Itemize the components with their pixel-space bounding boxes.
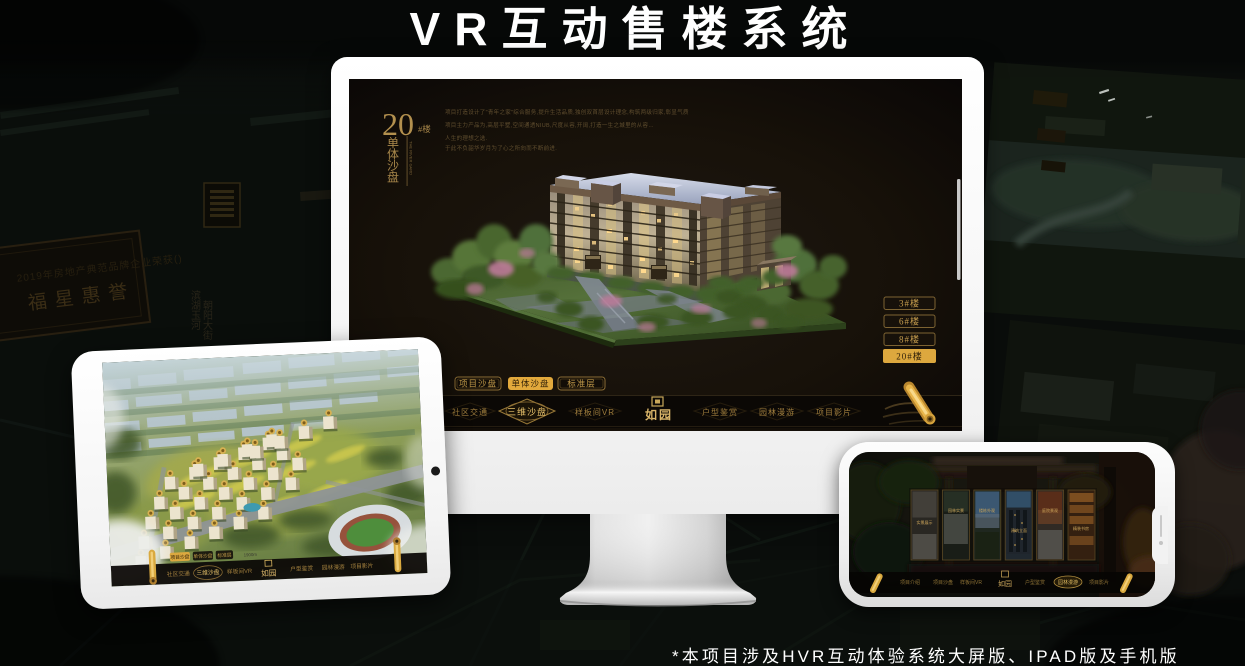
svg-text:三维沙盘: 三维沙盘 xyxy=(507,406,547,417)
svg-text:如园: 如园 xyxy=(645,407,673,422)
svg-text:3#楼: 3#楼 xyxy=(899,298,920,309)
svg-text:#楼: #楼 xyxy=(418,124,431,134)
svg-text:朝阳大街: 朝阳大街 xyxy=(201,300,213,341)
svg-text:单体沙盘: 单体沙盘 xyxy=(511,379,549,389)
svg-text:项目介绍: 项目介绍 xyxy=(900,579,920,586)
svg-text:项目沙盘: 项目沙盘 xyxy=(933,579,953,586)
svg-text:楼栋外观: 楼栋外观 xyxy=(979,507,995,513)
svg-text:园林漫游: 园林漫游 xyxy=(759,407,795,417)
svg-text:如园: 如园 xyxy=(261,567,277,578)
svg-text:1900m: 1900m xyxy=(244,552,258,558)
svg-text:于此不负韶华岁月为了心之所向而不断前进.: 于此不负韶华岁月为了心之所向而不断前进. xyxy=(445,144,557,152)
svg-text:庭院景观: 庭院景观 xyxy=(1042,507,1058,513)
svg-text:实景展示: 实景展示 xyxy=(917,519,933,525)
svg-text:户型鉴赏: 户型鉴赏 xyxy=(702,407,738,417)
svg-text:如园: 如园 xyxy=(998,579,1012,588)
svg-text:社区交通: 社区交通 xyxy=(452,407,488,417)
svg-text:园林漫游: 园林漫游 xyxy=(1058,579,1078,586)
svg-text:项目沙盘: 项目沙盘 xyxy=(459,379,497,389)
svg-text:建筑立面: 建筑立面 xyxy=(1011,527,1027,533)
svg-text:项目打造设计了"青年之家"综合服务,提升生活品质,独创双首层: 项目打造设计了"青年之家"综合服务,提升生活品质,独创双首层设计理念,构筑两级归… xyxy=(445,108,689,116)
svg-text:6#楼: 6#楼 xyxy=(899,316,920,327)
svg-text:园林实景: 园林实景 xyxy=(948,507,964,513)
svg-text:样板间VR: 样板间VR xyxy=(575,407,615,417)
svg-text:标准层: 标准层 xyxy=(567,379,596,389)
svg-text:精装书房: 精装书房 xyxy=(1073,525,1089,531)
svg-text:项目影片: 项目影片 xyxy=(816,407,852,417)
svg-text:项目主力产品为,高层平墅,空间通透NIUB,尺度从容,开阔,: 项目主力产品为,高层平墅,空间通透NIUB,尺度从容,开阔,打造一生之城里的从容… xyxy=(445,121,654,129)
svg-text:项目影片: 项目影片 xyxy=(1089,579,1109,586)
svg-text:户型鉴赏: 户型鉴赏 xyxy=(1025,579,1045,586)
svg-text:盘: 盘 xyxy=(387,170,399,185)
svg-text:人生的理想之选.: 人生的理想之选. xyxy=(445,134,488,142)
svg-text:样板间VR: 样板间VR xyxy=(960,579,982,586)
svg-text:滨湖玉河: 滨湖玉河 xyxy=(189,289,201,330)
svg-text:20#楼: 20#楼 xyxy=(896,351,923,362)
svg-text:8#楼: 8#楼 xyxy=(899,334,920,345)
svg-text:THE RIVER GARD: THE RIVER GARD xyxy=(409,141,414,175)
